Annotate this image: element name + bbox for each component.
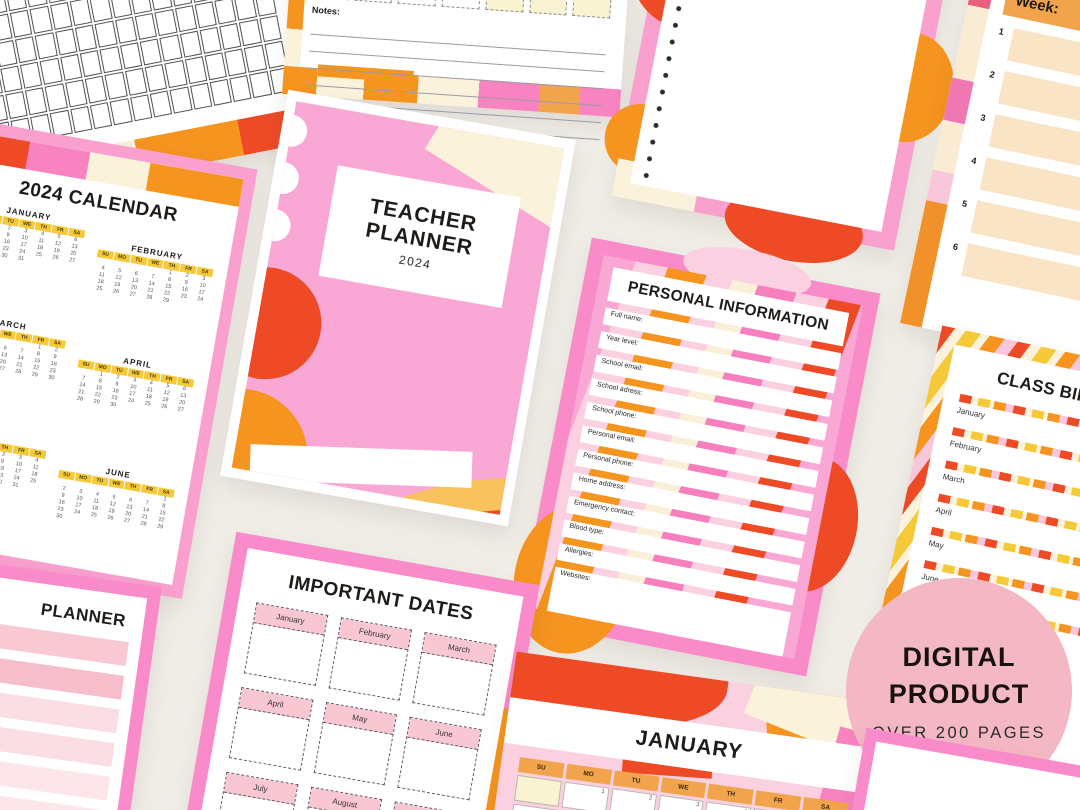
important-dates-box: February [328,617,412,701]
tracker-cell [165,60,188,87]
mini-month-june: JUNESUMOTUWETHFRSA1234567891011121314151… [45,459,177,573]
tracker-cell [60,54,83,81]
personal-info-fields: Full name:Year level:School email:School… [546,307,841,658]
planner-listing-mockup: Notes: D Week: 123456 2024 CALENDAR JANU… [0,0,1080,810]
tracker-cell [115,16,138,43]
tracker-cell [70,0,93,26]
tracker-cell [199,27,222,54]
important-dates-box: March [413,632,497,716]
notes-column-box [442,0,483,9]
tracker-cell [100,46,123,73]
badge-line2: PRODUCT [889,676,1030,712]
planner-title: PLANNER [0,581,127,631]
tracker-cell [0,66,23,93]
important-dates-space [245,623,323,685]
tracker-cell [145,64,168,91]
week-row-box [961,243,1080,316]
tracker-cell [189,82,212,109]
important-dates-page: IMPORTANT DATES JanuaryFebruaryMarchApri… [178,532,539,810]
tracker-cell [20,62,43,89]
notes-column-box [485,0,526,12]
red-circle [232,258,330,388]
notes-content: Notes: [306,0,613,84]
mini-month-may: MAYSUMOTUWETHFRSA12345678910111213141516… [0,420,48,550]
tracker-cell [85,76,108,103]
january-day-cell: 2 [609,788,657,810]
personal-info-body: PERSONAL INFORMATION Full name:Year leve… [535,255,863,659]
tracker-cell [204,53,227,80]
tracker-cell [244,45,267,72]
tracker-cell [130,94,153,121]
tracker-cell [219,23,242,50]
january-day-cell [514,775,562,807]
tracker-cell [110,0,133,18]
tracker-cell [90,102,113,129]
tracker-cell [234,0,257,21]
tracker-cell [135,13,158,40]
planner-body: PLANNER [0,563,147,810]
tracker-cell [90,0,113,22]
tracker-cell [140,38,163,65]
january-monthly-page: JANUARY SUMOTUWETHFRSA12345678910111213 [483,652,881,810]
important-dates-box: January [244,602,328,686]
tracker-cell [75,24,98,51]
tracker-cell [80,50,103,77]
important-dates-grid: JanuaryFebruaryMarchAprilMayJuneJulyAugu… [214,602,497,810]
january-day-cell: 1 [561,782,609,810]
planner-rows [0,610,129,810]
planner-page: PLANNER [0,548,162,810]
cover-year: 2024 [398,253,433,272]
important-dates-box: April [229,687,313,771]
tracker-cell [239,19,262,46]
tracker-cell [110,98,133,125]
important-dates-space [414,653,492,715]
mini-month-january: JANUARYSUMOTUWETHFRSA1234567891011121314… [0,199,87,322]
important-dates-box: September [383,801,467,810]
tracker-cell [254,0,277,17]
tracker-cell [150,90,173,117]
tracker-cell [55,28,78,55]
teacher-planner-cover: TEACHER PLANNER 2024 [220,90,576,527]
tracker-cell [70,106,93,133]
important-dates-body: IMPORTANT DATES JanuaryFebruaryMarchApri… [195,548,524,810]
tracker-cell [170,86,193,113]
gold-circle [232,475,289,515]
tracker-cell [40,58,63,85]
mini-month-april: APRILSUMOTUWETHFRSA123456789101112131415… [66,349,197,456]
cover-background: TEACHER PLANNER 2024 [232,101,564,515]
tracker-cell [155,9,178,36]
tracker-cell [249,71,272,98]
tracker-cell [30,6,53,33]
notes-column-box [529,0,570,16]
mini-month-march: MARCHSUMOTUWETHFRSA123456789101112131415… [0,310,68,433]
notes-column-box [398,0,439,6]
tracker-cell [50,2,73,29]
personal-information-page: PERSONAL INFORMATION Full name:Year leve… [517,238,880,677]
important-dates-box: July [214,772,298,810]
tracker-cell [209,78,232,105]
tracker-cell [224,49,247,76]
tracker-cell [259,15,282,42]
tracker-cell [35,32,58,59]
calendar-2024-page: 2024 CALENDAR JANUARYSUMOTUWETHFRSA12345… [0,117,258,599]
january-day-header: FR [755,790,802,810]
important-dates-box: May [313,702,397,786]
tracker-cell [95,20,118,47]
tracker-cell [120,42,143,69]
tracker-cell [214,0,237,24]
tracker-cell [65,80,88,107]
important-dates-space [329,638,407,700]
important-dates-box: June [398,717,482,801]
tracker-cell [125,68,148,95]
tracker-cell [105,72,128,99]
important-dates-box: August [298,787,382,810]
notes-column-box [572,0,613,19]
dotted-blank-page [611,0,952,251]
important-dates-space [314,723,392,785]
tracker-cell [15,36,38,63]
tracker-cell [184,57,207,84]
tracker-cell [179,31,202,58]
important-dates-month: August [308,788,381,810]
mini-month-february: FEBRUARYSUMOTUWETHFRSA123456789101112131… [85,238,216,345]
mini-month-grid: JANUARYSUMOTUWETHFRSA1234567891011121314… [0,195,232,585]
rainbow-arc-orange [232,502,564,515]
tracker-cell [160,35,183,62]
tracker-cell [229,75,252,102]
tracker-cell [45,84,68,111]
important-dates-month: September [393,803,466,810]
tracker-cell [10,10,33,37]
tracker-cell [25,88,48,115]
important-dates-space [399,738,477,800]
important-dates-space [230,708,308,770]
badge-line1: DIGITAL [903,639,1016,675]
tracker-cell [130,0,153,14]
calendar-2024-body: 2024 CALENDAR JANUARYSUMOTUWETHFRSA12345… [0,131,244,585]
tracker-cell [194,1,217,28]
scallop [256,207,293,244]
tracker-cell [5,91,28,118]
cover-name-strip [249,444,472,488]
scallop [264,159,301,196]
notes-column-box [354,0,395,3]
tracker-cell [174,5,197,32]
